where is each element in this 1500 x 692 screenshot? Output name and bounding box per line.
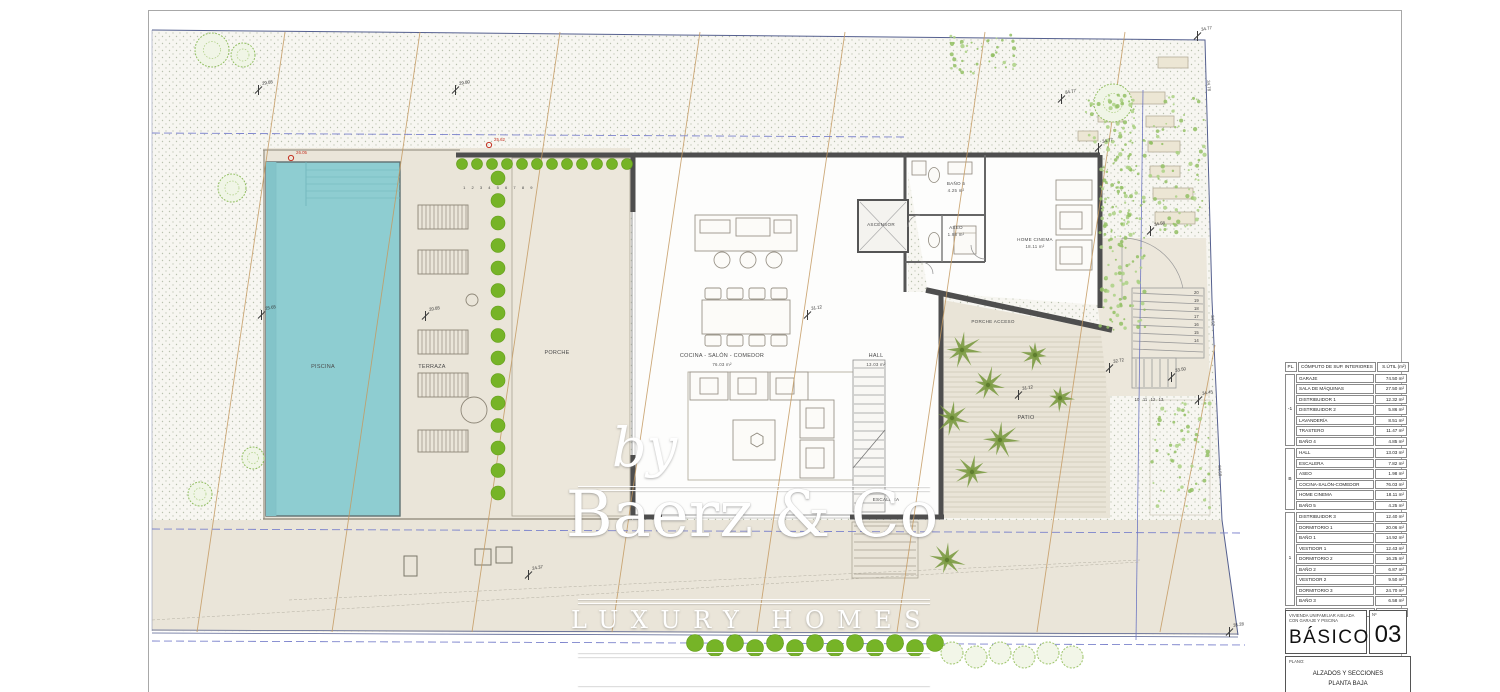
room-name: ASEO — [1296, 469, 1374, 479]
room-area: 7.82 m² — [1375, 459, 1407, 469]
room-area: 4.25 m² — [1375, 501, 1407, 511]
room-area: 5.86 m² — [1375, 405, 1407, 415]
schedule-row: DISTRIBUIDOR 112.32 m² — [1296, 395, 1407, 405]
schedule-floor-label: 1 — [1285, 512, 1295, 606]
room-area: 13.03 m² — [1375, 448, 1407, 458]
watermark-rule — [578, 599, 930, 600]
grid-number: 1 — [460, 185, 468, 190]
title-block-number: Nº 03 — [1369, 610, 1407, 654]
room-name: SALA DE MÁQUINAS — [1296, 384, 1374, 394]
dim-marker: 29.80 — [451, 86, 459, 94]
schedule-row: COCINA-SALÓN-COMEDOR76.03 m² — [1296, 480, 1407, 490]
room-name: BAÑO 2 — [1296, 565, 1374, 575]
schedule-row: BAÑO 26.87 m² — [1296, 565, 1407, 575]
phase-title: BÁSICO — [1289, 627, 1363, 649]
label-bano5: BAÑO 5 4.25 m² — [947, 180, 965, 194]
room-schedule-table: PL. CÓMPUTO DE SUP. INTERIORES S.ÚTIL (m… — [1285, 362, 1411, 617]
room-area: 8.51 m² — [1375, 416, 1407, 426]
schedule-floor-label: -1 — [1285, 374, 1295, 447]
schedule-row: ASEO1.98 m² — [1296, 469, 1407, 479]
project-line2: CON GARAJE Y PISCINA — [1289, 618, 1363, 623]
stair-number: 11 — [1141, 397, 1149, 402]
stair-number: 17 — [1194, 313, 1199, 321]
dim-marker: 24.37 — [524, 571, 532, 579]
room-area: 24.70 m² — [1375, 586, 1407, 596]
edge-dimension: 34.78 — [1206, 80, 1212, 91]
room-name: TRASTERO — [1296, 426, 1374, 436]
site-plan-drawing — [0, 0, 1500, 692]
room-area: 12.40 m² — [1375, 512, 1407, 522]
room-area: 18.11 m² — [1375, 490, 1407, 500]
schedule-row: HOME CINEMA18.11 m² — [1296, 490, 1407, 500]
schedule-header: PL. CÓMPUTO DE SUP. INTERIORES S.ÚTIL (m… — [1285, 362, 1411, 372]
edge-dimension: 34.58 — [1217, 465, 1223, 476]
label-hall-area: 13.03 m² — [866, 361, 885, 368]
schedule-group: BHALL13.03 m²ESCALERA7.82 m²ASEO1.98 m²C… — [1285, 448, 1411, 510]
dim-marker: 33.50 — [1167, 373, 1175, 381]
dim-marker: 31.12 — [1014, 391, 1022, 399]
room-name: DISTRIBUIDOR 1 — [1296, 395, 1374, 405]
watermark-rule — [578, 656, 930, 657]
room-area: 4.85 m² — [1375, 437, 1407, 447]
label-patio: PATIO — [1018, 414, 1035, 423]
schedule-row: BAÑO 44.85 m² — [1296, 437, 1407, 447]
label-porche: PORCHE — [544, 349, 569, 358]
room-area: 6.87 m² — [1375, 565, 1407, 575]
schedule-header-area: S.ÚTIL (m²) — [1377, 362, 1409, 372]
plano-label: PLANO: — [1289, 659, 1407, 664]
dim-marker: 34.58 — [1146, 227, 1154, 235]
label-aseo-area: 1.98 m² — [948, 231, 965, 238]
stair-number: 16 — [1194, 321, 1199, 329]
stair-tread-numbers-upper: 20191817161514 — [1194, 289, 1199, 345]
schedule-row: HALL13.03 m² — [1296, 448, 1407, 458]
label-hall-name: HALL — [869, 353, 884, 359]
dim-marker: 32.72 — [1105, 364, 1113, 372]
label-home-cinema-area: 18.11 m² — [1017, 243, 1053, 250]
stair-number: 18 — [1194, 305, 1199, 313]
schedule-row: TRASTERO11.47 m² — [1296, 426, 1407, 436]
label-home-cinema: HOME CINEMA 18.11 m² — [1017, 236, 1053, 250]
room-name: LAVANDERÍA — [1296, 416, 1374, 426]
room-area: 12.43 m² — [1375, 544, 1407, 554]
watermark-rule — [578, 652, 930, 653]
label-cocina-name: COCINA - SALÓN - COMEDOR — [680, 353, 764, 359]
stair-number: 19 — [1194, 297, 1199, 305]
room-area: 76.03 m² — [1375, 480, 1407, 490]
plano-line2: PLANTA BAJA — [1289, 680, 1407, 690]
schedule-row: DISTRIBUIDOR 312.40 m² — [1296, 512, 1407, 522]
garden-stair-south — [852, 522, 918, 578]
room-area: 9.50 m² — [1375, 575, 1407, 585]
label-ascensor: ASCENSOR — [867, 221, 895, 228]
room-name: BAÑO 1 — [1296, 533, 1374, 543]
sheet-number: 03 — [1370, 621, 1406, 649]
room-name: HALL — [1296, 448, 1374, 458]
label-cocina-area: 76.03 m² — [680, 361, 764, 368]
label-hall: HALL 13.03 m² — [866, 352, 885, 368]
swimming-pool — [266, 162, 400, 516]
watermark-rule — [578, 490, 930, 491]
room-name: DORMITORIO 2 — [1296, 554, 1374, 564]
dim-marker: 29.85 — [254, 86, 262, 94]
label-piscina: PISCINA — [311, 363, 335, 372]
title-block: VIVIENDA UNIFAMILIAR AISLADA CON GARAJE … — [1285, 610, 1411, 692]
stair-number: 13 — [1157, 397, 1165, 402]
schedule-row: VESTIDOR 112.43 m² — [1296, 544, 1407, 554]
dim-marker: 34.77 — [1057, 95, 1065, 103]
schedule-row: DORMITORIO 120.06 m² — [1296, 523, 1407, 533]
room-area: 1.98 m² — [1375, 469, 1407, 479]
dim-marker: 34.45 — [1194, 396, 1202, 404]
title-block-plano: PLANO: ALZADOS Y SECCIONES PLANTA BAJA — [1285, 656, 1411, 692]
room-name: DISTRIBUIDOR 2 — [1296, 405, 1374, 415]
room-area: 16.25 m² — [1375, 554, 1407, 564]
schedule-row: SALA DE MÁQUINAS27.50 m² — [1296, 384, 1407, 394]
schedule-group: -1GARAJE74.50 m²SALA DE MÁQUINAS27.50 m²… — [1285, 374, 1411, 447]
label-cocina: COCINA - SALÓN - COMEDOR 76.03 m² — [680, 352, 764, 368]
dim-marker: 35.28 — [1225, 628, 1233, 636]
room-name: BAÑO 4 — [1296, 437, 1374, 447]
label-aseo: ASEO 1.98 m² — [948, 224, 965, 238]
label-bano5-name: BAÑO 5 — [947, 181, 965, 186]
room-area: 74.50 m² — [1375, 374, 1407, 384]
schedule-row: BAÑO 114.92 m² — [1296, 533, 1407, 543]
label-escalera: ESCALERA — [873, 496, 900, 503]
room-name: DORMITORIO 3 — [1296, 586, 1374, 596]
room-name: DORMITORIO 1 — [1296, 523, 1374, 533]
room-name: DISTRIBUIDOR 3 — [1296, 512, 1374, 522]
room-area: 20.06 m² — [1375, 523, 1407, 533]
schedule-row: BAÑO 54.25 m² — [1296, 501, 1407, 511]
floor-plan-sheet: PISCINA TERRAZA PORCHE COCINA - SALÓN - … — [0, 0, 1500, 692]
room-area: 12.32 m² — [1375, 395, 1407, 405]
room-name: GARAJE — [1296, 374, 1374, 384]
schedule-header-name: CÓMPUTO DE SUP. INTERIORES — [1298, 362, 1376, 372]
schedule-row: LAVANDERÍA8.51 m² — [1296, 416, 1407, 426]
number-label: Nº — [1372, 612, 1377, 617]
room-area: 14.92 m² — [1375, 533, 1407, 543]
label-bano5-area: 4.25 m² — [947, 187, 965, 194]
red-level-value: 25.62 — [494, 137, 505, 142]
schedule-floor-label: B — [1285, 448, 1295, 510]
schedule-row: ESCALERA7.82 m² — [1296, 459, 1407, 469]
room-name: BAÑO 5 — [1296, 501, 1374, 511]
schedule-header-pl: PL. — [1285, 362, 1297, 372]
grid-number: 7 — [510, 185, 518, 190]
room-name: ESCALERA — [1296, 459, 1374, 469]
grid-number: 3 — [477, 185, 485, 190]
dim-marker: 25.65 — [257, 311, 265, 319]
label-porche-acceso: PORCHE ACCESO — [971, 318, 1014, 325]
label-home-cinema-name: HOME CINEMA — [1017, 237, 1053, 242]
schedule-row: DISTRIBUIDOR 25.86 m² — [1296, 405, 1407, 415]
stair-number: 14 — [1194, 337, 1199, 345]
room-name: BAÑO 3 — [1296, 596, 1374, 606]
grid-number: 6 — [502, 185, 510, 190]
dim-marker: 20.85 — [421, 312, 429, 320]
grid-number: 2 — [468, 185, 476, 190]
label-terraza: TERRAZA — [418, 363, 445, 372]
schedule-row: BAÑO 36.58 m² — [1296, 596, 1407, 606]
red-level-value: 26.05 — [296, 150, 307, 155]
schedule-row: DORMITORIO 324.70 m² — [1296, 586, 1407, 596]
watermark-rule — [578, 603, 930, 604]
column-grid-numbers: 123456789 — [460, 176, 536, 194]
room-name: COCINA-SALÓN-COMEDOR — [1296, 480, 1374, 490]
grid-number: 5 — [494, 185, 502, 190]
room-name: HOME CINEMA — [1296, 490, 1374, 500]
title-block-project: VIVIENDA UNIFAMILIAR AISLADA CON GARAJE … — [1285, 610, 1367, 654]
schedule-row: VESTIDOR 29.50 m² — [1296, 575, 1407, 585]
room-name: VESTIDOR 2 — [1296, 575, 1374, 585]
edge-dimension: 34.52 — [1210, 315, 1216, 326]
room-area: 6.58 m² — [1375, 596, 1407, 606]
room-area: 11.47 m² — [1375, 426, 1407, 436]
grid-number: 8 — [519, 185, 527, 190]
schedule-group: 1DISTRIBUIDOR 312.40 m²DORMITORIO 120.06… — [1285, 512, 1411, 606]
schedule-row: GARAJE74.50 m² — [1296, 374, 1407, 384]
watermark-rule — [578, 685, 930, 686]
dim-marker: 34.77 — [1193, 32, 1201, 40]
stair-number: 20 — [1194, 289, 1199, 297]
dim-marker: 34.77 — [1094, 144, 1102, 152]
watermark-rule — [578, 486, 930, 487]
stair-number: 10 — [1133, 397, 1141, 402]
dim-marker: 31.12 — [803, 311, 811, 319]
room-name: VESTIDOR 1 — [1296, 544, 1374, 554]
grid-number: 4 — [485, 185, 493, 190]
plano-line1: ALZADOS Y SECCIONES — [1289, 670, 1407, 680]
stair-number: 15 — [1194, 329, 1199, 337]
schedule-groups: -1GARAJE74.50 m²SALA DE MÁQUINAS27.50 m²… — [1285, 374, 1411, 606]
room-area: 27.50 m² — [1375, 384, 1407, 394]
stair-tread-numbers-lower: 10111213 — [1133, 388, 1165, 406]
stair-number: 12 — [1149, 397, 1157, 402]
label-aseo-name: ASEO — [949, 225, 963, 230]
grid-number: 9 — [527, 185, 535, 190]
schedule-row: DORMITORIO 216.25 m² — [1296, 554, 1407, 564]
